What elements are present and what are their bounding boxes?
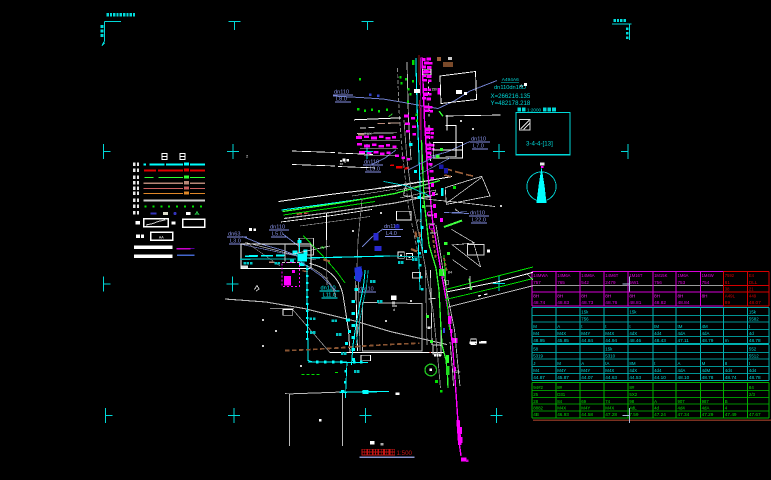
svg-text:907: 907 — [678, 399, 686, 404]
svg-text:A: A — [520, 83, 523, 88]
svg-text:4d4: 4d4 — [725, 368, 733, 373]
svg-text:25: 25 — [533, 392, 538, 397]
svg-text:48.95: 48.95 — [533, 338, 545, 343]
svg-text:8#: 8# — [629, 385, 634, 390]
svg-text:45.85: 45.85 — [557, 338, 569, 343]
svg-text:48.43: 48.43 — [654, 338, 666, 343]
svg-text:4d4: 4d4 — [678, 405, 686, 410]
svg-text:89: 89 — [725, 300, 731, 306]
svg-text:B: B — [725, 399, 728, 404]
svg-text:48.78: 48.78 — [749, 338, 761, 343]
svg-text:4dA: 4dA — [702, 405, 710, 410]
svg-text:dZb: dZb — [454, 369, 462, 374]
svg-text:8H: 8H — [605, 294, 611, 299]
svg-text:M4Y: M4Y — [581, 405, 590, 410]
svg-text:2/3: 2/3 — [749, 392, 756, 397]
svg-text:5310: 5310 — [605, 354, 615, 359]
svg-text:8H: 8H — [678, 294, 684, 299]
svg-text:8H: 8H — [654, 294, 660, 299]
svg-text:8H: 8H — [629, 294, 635, 299]
svg-text:94#2: 94#2 — [533, 385, 543, 390]
svg-text:48.76: 48.76 — [605, 300, 617, 306]
svg-text:48.79: 48.79 — [702, 338, 714, 343]
svg-text:M4X: M4X — [557, 331, 566, 336]
svg-text:D31: D31 — [557, 392, 566, 397]
svg-text:A49L: A49L — [725, 294, 736, 299]
svg-text:4dX: 4dX — [629, 331, 637, 336]
svg-text:M4Y: M4Y — [581, 331, 590, 336]
svg-text:47.24: 47.24 — [654, 412, 666, 417]
svg-text:44.87: 44.87 — [533, 375, 545, 380]
svg-text:98: 98 — [629, 399, 634, 404]
svg-text:A: A — [557, 324, 560, 329]
svg-text:1M15K: 1M15K — [654, 273, 667, 278]
svg-text:M4X: M4X — [605, 331, 614, 336]
svg-text:8882: 8882 — [533, 405, 543, 410]
svg-text:84: 84 — [749, 385, 754, 390]
svg-text:15k: 15k — [605, 347, 613, 352]
svg-text:15k: 15k — [629, 310, 637, 315]
svg-text:M: M — [533, 324, 537, 329]
svg-text:38: 38 — [725, 287, 730, 292]
svg-text:753: 753 — [678, 280, 686, 285]
svg-text:14MWA: 14MWA — [533, 273, 548, 278]
svg-text:754: 754 — [702, 280, 710, 285]
svg-text:M4Y: M4Y — [581, 368, 590, 373]
svg-text:757: 757 — [533, 280, 541, 285]
svg-text:1M16T: 1M16T — [629, 273, 642, 278]
svg-text:xx: xx — [340, 162, 344, 166]
svg-text:47.67: 47.67 — [749, 412, 761, 417]
svg-text:48.73: 48.73 — [581, 300, 593, 306]
svg-text:3-4-4-[13]: 3-4-4-[13] — [526, 140, 553, 147]
svg-text:4d4: 4d4 — [654, 368, 662, 373]
svg-text:F2: F2 — [417, 218, 422, 223]
svg-text:8H: 8H — [533, 294, 539, 299]
svg-text:48.78: 48.78 — [749, 375, 761, 380]
svg-text:4dA: 4dA — [678, 331, 686, 336]
svg-text:J: J — [533, 361, 535, 366]
svg-text:8M: 8M — [629, 361, 635, 366]
svg-text:Y=482178.218: Y=482178.218 — [491, 100, 531, 107]
svg-text:X=266216.135: X=266216.135 — [491, 93, 531, 100]
svg-text:28: 28 — [533, 399, 538, 404]
svg-text:AA: AA — [159, 236, 164, 240]
svg-text:44.84: 44.84 — [581, 338, 593, 343]
svg-text:5319: 5319 — [533, 354, 543, 359]
svg-text:M4: M4 — [533, 331, 540, 336]
svg-text:EUX: EUX — [364, 132, 372, 136]
svg-text:542: 542 — [581, 280, 589, 285]
svg-text:M: M — [702, 361, 706, 366]
svg-text:47.49: 47.49 — [725, 412, 737, 417]
svg-text:A: A — [678, 361, 681, 366]
svg-text:4d: 4d — [749, 331, 754, 336]
svg-text:4dX: 4dX — [629, 368, 637, 373]
svg-text:4M: 4M — [702, 324, 708, 329]
svg-text:M4X: M4X — [605, 368, 614, 373]
svg-text:7.59: 7.59 — [629, 412, 639, 417]
svg-text:44.53: 44.53 — [629, 375, 641, 380]
svg-text:1M4W: 1M4W — [702, 273, 714, 278]
svg-text:DLL: DLL — [749, 280, 758, 285]
svg-text:M4: M4 — [533, 368, 540, 373]
svg-text:8#: 8# — [557, 385, 562, 390]
svg-text:552: 552 — [749, 347, 757, 352]
svg-text:84: 84 — [448, 270, 453, 275]
svg-text:4: 4 — [344, 160, 346, 164]
svg-text:4d4: 4d4 — [749, 368, 757, 373]
svg-text:tM: tM — [654, 324, 659, 329]
svg-text:48.82: 48.82 — [654, 300, 666, 306]
svg-text:8H: 8H — [581, 294, 587, 299]
svg-text:2479: 2479 — [605, 280, 616, 285]
svg-text:44.63: 44.63 — [605, 375, 617, 380]
svg-text:150: 150 — [432, 88, 438, 92]
svg-text:tM: tM — [678, 324, 683, 329]
svg-text:48.78: 48.78 — [702, 375, 714, 380]
svg-text:d: d — [393, 308, 395, 312]
svg-text:765: 765 — [557, 280, 565, 285]
svg-text:8H: 8H — [702, 294, 708, 299]
svg-text:48.74: 48.74 — [725, 375, 737, 380]
svg-text:7592: 7592 — [725, 273, 735, 278]
svg-text:44.10: 44.10 — [654, 375, 666, 380]
svg-text:5X2: 5X2 — [629, 392, 637, 397]
svg-text:756: 756 — [581, 317, 589, 322]
svg-text:48.46: 48.46 — [629, 338, 641, 343]
svg-text:15k: 15k — [581, 310, 589, 315]
svg-text:69: 69 — [581, 399, 586, 404]
svg-text:47.29: 47.29 — [702, 412, 714, 417]
svg-text:M4X: M4X — [605, 405, 614, 410]
svg-text:4dM: 4dM — [702, 368, 711, 373]
svg-text:tA: tA — [605, 361, 609, 366]
svg-text:M4Y: M4Y — [557, 368, 566, 373]
svg-text:44.07: 44.07 — [581, 375, 593, 380]
svg-text:45.87: 45.87 — [557, 375, 569, 380]
svg-text:47.28: 47.28 — [605, 412, 617, 417]
svg-text:14M6A: 14M6A — [557, 273, 570, 278]
svg-text:14M6A: 14M6A — [581, 273, 594, 278]
svg-text:M: M — [557, 361, 561, 366]
svg-text:14M6T: 14M6T — [605, 273, 618, 278]
svg-text:48.10: 48.10 — [678, 375, 690, 380]
svg-text:48.84: 48.84 — [678, 300, 690, 306]
svg-text:4dA: 4dA — [678, 368, 686, 373]
svg-text:M4X: M4X — [557, 405, 566, 410]
svg-text:4B: 4B — [533, 412, 539, 417]
svg-text:4dA: 4dA — [702, 331, 710, 336]
svg-text:4dL: 4dL — [629, 405, 637, 410]
svg-text:4d4: 4d4 — [654, 331, 662, 336]
svg-text:47.34: 47.34 — [678, 412, 690, 417]
svg-text:756: 756 — [654, 280, 662, 285]
svg-text:46.93: 46.93 — [557, 412, 569, 417]
svg-text:449: 449 — [749, 294, 757, 299]
svg-text:A: A — [581, 361, 584, 366]
svg-text:W: W — [321, 245, 325, 250]
svg-text:84: 84 — [557, 399, 562, 404]
svg-text:m: m — [725, 338, 729, 343]
svg-text:5512: 5512 — [749, 354, 759, 359]
svg-text:5582: 5582 — [749, 317, 759, 322]
svg-text:21: 21 — [749, 287, 754, 292]
svg-text:61: 61 — [725, 280, 731, 285]
svg-text:58: 58 — [533, 347, 538, 352]
svg-text:E4: E4 — [749, 273, 755, 278]
svg-text:987: 987 — [702, 399, 710, 404]
svg-text:48.83: 48.83 — [557, 300, 569, 306]
svg-text:J: J — [434, 189, 436, 194]
svg-text:8H: 8H — [557, 294, 563, 299]
svg-text:44.94: 44.94 — [605, 338, 617, 343]
svg-text:48.81: 48.81 — [629, 300, 641, 306]
svg-text:44.58: 44.58 — [581, 412, 593, 417]
svg-text:15k: 15k — [749, 310, 757, 315]
svg-text:x: x — [455, 208, 457, 212]
svg-text:A: A — [654, 399, 657, 404]
svg-text:47.11: 47.11 — [678, 338, 690, 343]
svg-text:74: 74 — [605, 399, 610, 404]
svg-text:4d: 4d — [654, 405, 659, 410]
svg-text:5W1: 5W1 — [629, 280, 639, 285]
svg-text:1:500: 1:500 — [397, 450, 413, 457]
svg-text:1M6A: 1M6A — [678, 273, 689, 278]
svg-text:48.07: 48.07 — [749, 300, 761, 306]
svg-text:48.74: 48.74 — [533, 300, 545, 306]
